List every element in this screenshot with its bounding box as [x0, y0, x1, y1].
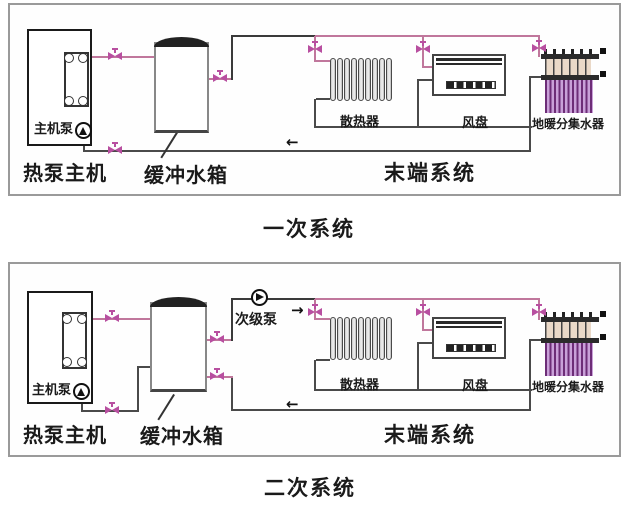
primary-system-caption: 一次系统	[263, 213, 355, 243]
valve-icon	[105, 310, 119, 323]
hx-port-bottom-left	[62, 357, 72, 367]
secondary-pump-icon	[251, 289, 268, 306]
fan-coil-bar-icon	[436, 63, 502, 66]
pipe-supply-main-left	[232, 35, 316, 37]
valve-icon	[108, 142, 122, 155]
pipe-manifold-return-v	[529, 339, 531, 411]
fan-coil-bar-icon	[436, 326, 502, 329]
fan-coil-bar-icon	[436, 321, 502, 324]
pipe-main-return	[83, 150, 531, 152]
main-pump-icon	[75, 122, 92, 139]
pipe-riser-return	[231, 377, 233, 410]
pipe-riser	[231, 35, 233, 80]
radiator-fin-icon	[358, 317, 364, 360]
primary-system-panel: 主机泵 热泵主机 缓冲水箱 散热器 风盘 地暖分集水器 ← 末端系统	[8, 3, 621, 196]
main-pump-label: 主机泵	[34, 118, 73, 137]
pump-triangle-icon	[256, 293, 264, 301]
radiator	[329, 317, 392, 360]
radiator-label: 散热器	[340, 111, 379, 130]
tank-label-pointer	[160, 132, 177, 158]
manifold-loops	[545, 343, 593, 376]
radiator-fin-icon	[365, 58, 371, 101]
radiator-fin-icon	[344, 58, 350, 101]
fan-coil-grille-icon	[446, 344, 496, 352]
buffer-tank	[150, 302, 207, 392]
fan-coil-grille-icon	[446, 81, 496, 89]
manifold-loops	[545, 80, 593, 113]
radiator-fin-icon	[337, 317, 343, 360]
pipe-riser-supply	[231, 298, 233, 341]
manifold-stub-bottom	[600, 334, 606, 340]
buffer-tank-dome	[154, 37, 209, 47]
hx-port-top-right	[77, 314, 87, 324]
radiator-fin-icon	[386, 317, 392, 360]
buffer-tank-dome	[150, 297, 207, 307]
valve-icon	[416, 41, 430, 54]
manifold-label: 地暖分集水器	[532, 378, 604, 395]
manifold-connectors	[545, 59, 591, 76]
pipe-manifold-return-v	[529, 76, 531, 152]
pipe-radiator-stub-bottom	[316, 359, 330, 361]
pipe-secondary-return	[231, 409, 531, 411]
pipe-tank-left-return-v	[137, 366, 139, 412]
flow-arrow-left-icon: ←	[286, 133, 299, 151]
secondary-pump-label: 次级泵	[235, 309, 277, 329]
valve-icon	[416, 304, 430, 317]
fan-coil-label: 风盘	[462, 112, 488, 131]
radiator-fin-icon	[379, 58, 385, 101]
radiator-fin-icon	[351, 317, 357, 360]
valve-icon	[210, 331, 224, 344]
radiator-fin-icon	[337, 58, 343, 101]
valve-icon	[108, 48, 122, 61]
hx-port-top-left	[64, 53, 74, 63]
pipe-radiator-stub-top	[316, 60, 330, 62]
pipe-radiator-stub-bottom	[316, 98, 330, 100]
radiator-fin-icon	[351, 58, 357, 101]
hx-port-bottom-left	[64, 96, 74, 106]
hx-port-bottom-right	[77, 357, 87, 367]
radiator-fin-icon	[365, 317, 371, 360]
radiator-fin-icon	[386, 58, 392, 101]
manifold-label: 地暖分集水器	[532, 115, 604, 132]
pipe-supply-main-right	[315, 298, 540, 300]
terminal-system-label: 末端系统	[384, 419, 476, 449]
valve-icon	[532, 304, 546, 317]
fan-coil	[432, 54, 506, 96]
valve-icon	[308, 41, 322, 54]
valve-icon	[105, 402, 119, 415]
buffer-tank-label: 缓冲水箱	[140, 420, 224, 449]
tank-label-pointer	[157, 394, 174, 420]
pipe-fancoil-return-v	[417, 79, 419, 127]
valve-icon	[532, 40, 546, 53]
buffer-tank	[154, 42, 209, 133]
radiator-fin-icon	[344, 317, 350, 360]
secondary-system-panel: 主机泵 热泵主机 缓冲水箱 次级泵 → 散热器 风盘 地暖分集水器 ← 末端系统	[8, 262, 621, 457]
manifold-stub-top	[600, 311, 606, 317]
pipe-radiator-stub-top	[316, 318, 330, 320]
heat-pump-unit-label: 热泵主机	[23, 157, 107, 186]
valve-icon	[213, 70, 227, 83]
pipe-tank-left-return-h	[137, 366, 151, 368]
pipe-supply-main-right	[315, 35, 540, 37]
fan-coil	[432, 317, 506, 359]
hx-port-top-left	[62, 314, 72, 324]
manifold-stub-bottom	[600, 71, 606, 77]
radiator-fin-icon	[372, 317, 378, 360]
schematic-page: { "captions": { "primary": "一次系统", "seco…	[0, 0, 629, 508]
main-pump-label: 主机泵	[32, 379, 71, 398]
valve-icon	[308, 304, 322, 317]
valve-icon	[210, 368, 224, 381]
flow-arrow-right-icon: →	[291, 301, 304, 319]
radiator	[329, 58, 392, 101]
main-pump-icon	[73, 383, 90, 400]
hx-port-bottom-right	[78, 96, 88, 106]
manifold-connectors	[545, 322, 591, 338]
radiator-fin-icon	[379, 317, 385, 360]
fan-coil-bar-icon	[436, 58, 502, 61]
hx-port-top-right	[78, 53, 88, 63]
pump-triangle-icon	[77, 388, 85, 396]
terminal-system-label: 末端系统	[384, 157, 476, 187]
secondary-system-caption: 二次系统	[264, 472, 356, 502]
radiator-fin-icon	[330, 317, 336, 360]
pipe-fancoil-return-v	[417, 342, 419, 390]
fan-coil-label: 风盘	[462, 375, 488, 394]
radiator-fin-icon	[372, 58, 378, 101]
buffer-tank-label: 缓冲水箱	[144, 159, 228, 188]
pipe-supply-main-left	[232, 298, 316, 300]
radiator-label: 散热器	[340, 374, 379, 393]
radiator-fin-icon	[358, 58, 364, 101]
radiator-fin-icon	[330, 58, 336, 101]
pipe-radiator-return	[314, 99, 316, 127]
flow-arrow-left-icon: ←	[286, 395, 299, 413]
heat-pump-unit-label: 热泵主机	[23, 419, 107, 448]
manifold-stub-top	[600, 48, 606, 54]
pipe-radiator-return	[314, 360, 316, 390]
pump-triangle-icon	[79, 127, 87, 135]
